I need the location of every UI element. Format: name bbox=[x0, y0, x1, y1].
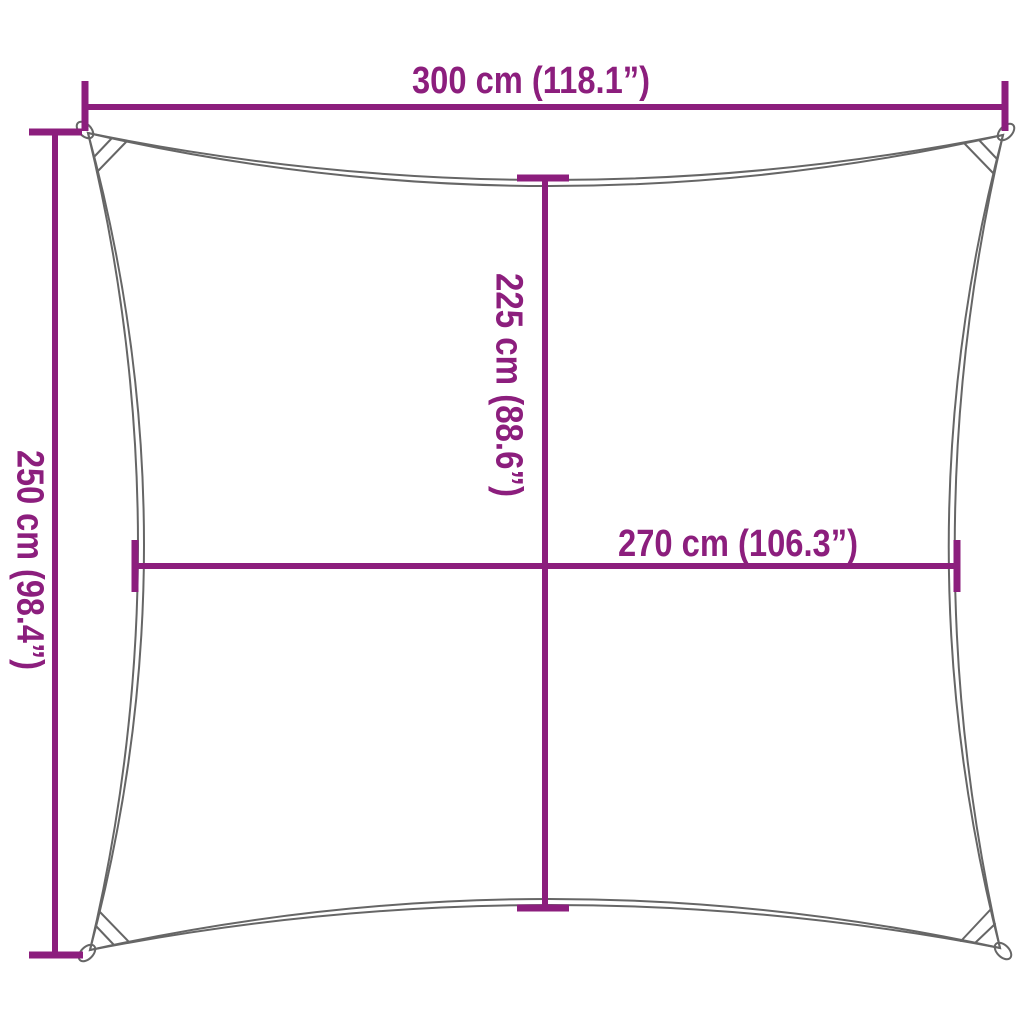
left-height-dimension-label: 250 cm (98.4”) bbox=[9, 450, 51, 670]
diagram-canvas: 300 cm (118.1”) 250 cm (98.4”) 225 cm (8… bbox=[0, 0, 1024, 1024]
top-width-dimension-label: 300 cm (118.1”) bbox=[412, 60, 650, 102]
center-height-dimension-label: 225 cm (88.6”) bbox=[488, 273, 530, 497]
corner-stitches-bottom-left bbox=[96, 911, 129, 945]
corner-stitches-bottom-right bbox=[961, 909, 995, 943]
shade-sail-dimension-diagram: 300 cm (118.1”) 250 cm (98.4”) 225 cm (8… bbox=[0, 0, 1024, 1024]
center-width-dimension-label: 270 cm (106.3”) bbox=[618, 523, 858, 565]
dimension-left-height: 250 cm (98.4”) bbox=[9, 132, 84, 955]
corner-loop-bottom-right-icon bbox=[992, 940, 1015, 963]
corner-stitches-top-right bbox=[964, 140, 997, 174]
dimension-center-height: 225 cm (88.6”) bbox=[488, 178, 570, 908]
corner-stitches-top-left bbox=[94, 138, 127, 172]
dimension-top-width: 300 cm (118.1”) bbox=[85, 60, 1005, 131]
